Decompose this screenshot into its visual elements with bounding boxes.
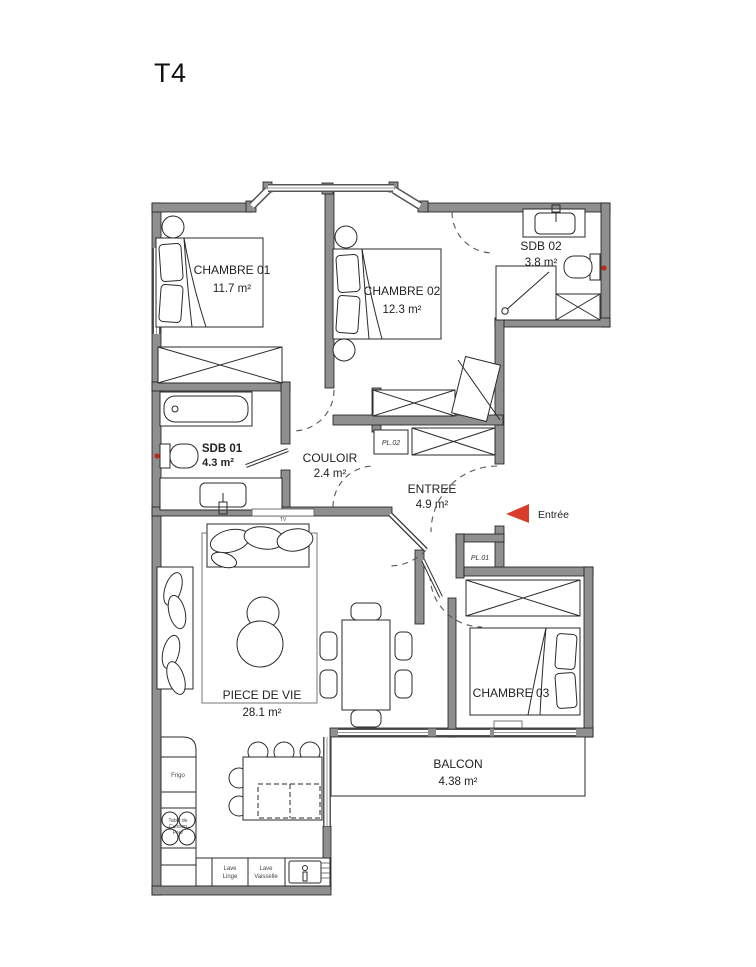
chambre02-area: 12.3 m²	[383, 304, 422, 316]
chambre01-name: CHAMBRE 01	[194, 263, 271, 277]
piece-de-vie-area: 28.1 m²	[243, 707, 282, 719]
sink-icon	[535, 213, 575, 234]
piece-de-vie-name: PIECE DE VIE	[223, 688, 302, 702]
chambre02-name: CHAMBRE 02	[364, 284, 441, 298]
room-couloir: COULOIR 2.4 m²	[303, 451, 358, 480]
pl01-label: PL.01	[471, 555, 489, 562]
dining-table-icon	[320, 603, 412, 727]
corner-wardrobe-icon	[452, 357, 501, 422]
floor-plan: CHAMBRE 01 11.7 m² CHAMBRE 02 12.3 m²	[0, 0, 756, 962]
chambre03-name: CHAMBRE 03	[473, 686, 550, 700]
lave-vaisselle-label: Lave	[259, 866, 273, 872]
svg-text:Vaisselle: Vaisselle	[254, 874, 278, 880]
bedside-table-icon	[335, 226, 357, 248]
sdb02-area: 3.8 m²	[525, 257, 558, 269]
bedside-table-icon	[162, 216, 184, 238]
bottom-counter: Lave Linge Lave Vaisselle	[196, 858, 330, 886]
chambre01-area: 11.7 m²	[213, 283, 251, 295]
shower-icon	[496, 266, 556, 320]
balcon-area: 4.38 m²	[439, 776, 478, 788]
room-sdb01: SDB 01 4.3 m²	[154, 392, 282, 514]
sdb01-area: 4.3 m²	[202, 457, 234, 469]
tv-unit-icon: TV	[252, 509, 314, 523]
frigo-label: Frigo	[171, 773, 185, 779]
room-sdb02: SDB 02 3.8 m²	[496, 205, 607, 320]
island-icon	[229, 742, 322, 820]
floor-plan-page: T4	[0, 0, 756, 962]
sdb01-door-leaf	[246, 450, 288, 466]
room-chambre01: CHAMBRE 01 11.7 m²	[156, 216, 282, 383]
couloir-area: 2.4 m²	[314, 468, 347, 480]
bathtub-icon	[160, 392, 252, 426]
couloir-door-arc	[293, 390, 334, 431]
entry-marker: Entrée	[506, 504, 569, 523]
room-chambre03: CHAMBRE 03	[466, 580, 580, 715]
sdb02-door-arc	[452, 212, 493, 253]
balcon-name: BALCON	[433, 757, 482, 771]
lave-linge-label: Lave	[223, 866, 237, 872]
tv-label: TV	[280, 517, 287, 523]
room-balcon: BALCON 4.38 m²	[331, 737, 585, 796]
entry-label: Entrée	[538, 509, 569, 521]
living-door-leaf	[390, 514, 426, 550]
room-chambre02: CHAMBRE 02 12.3 m²	[333, 226, 500, 421]
couloir-name: COULOIR	[303, 451, 358, 465]
cabinet-icon	[556, 294, 600, 320]
wardrobe-icon	[412, 428, 495, 455]
svg-text:Four: Four	[173, 830, 184, 836]
coffee-table-icon	[237, 597, 283, 667]
sofa-icon	[157, 567, 193, 697]
pl01-closet: PL.01	[471, 555, 489, 562]
bay-window	[252, 188, 420, 206]
bedside-table-icon	[333, 339, 355, 361]
plan-title: T4	[154, 58, 187, 89]
toilet-icon	[564, 254, 607, 280]
toilet-icon	[154, 444, 198, 468]
sofa-icon	[207, 524, 314, 571]
svg-text:Linge: Linge	[223, 874, 238, 880]
sdb01-name: SDB 01	[202, 443, 243, 455]
entry-arrow-icon	[506, 504, 529, 523]
kitchen-counter	[161, 737, 196, 865]
sdb02-name: SDB 02	[520, 239, 562, 253]
wardrobe-icon	[466, 580, 580, 616]
kitchen-area: Frigo Table de Cuisson Four	[161, 737, 330, 886]
pl02-label: PL.02	[382, 440, 400, 447]
entree-area: 4.9 m²	[416, 499, 449, 511]
entree-name: ENTREE	[408, 482, 457, 496]
room-piece-de-vie: TV	[157, 509, 412, 727]
room-entree: PL.02 ENTREE 4.9 m²	[374, 428, 495, 511]
passage-door-leaf	[423, 560, 441, 597]
